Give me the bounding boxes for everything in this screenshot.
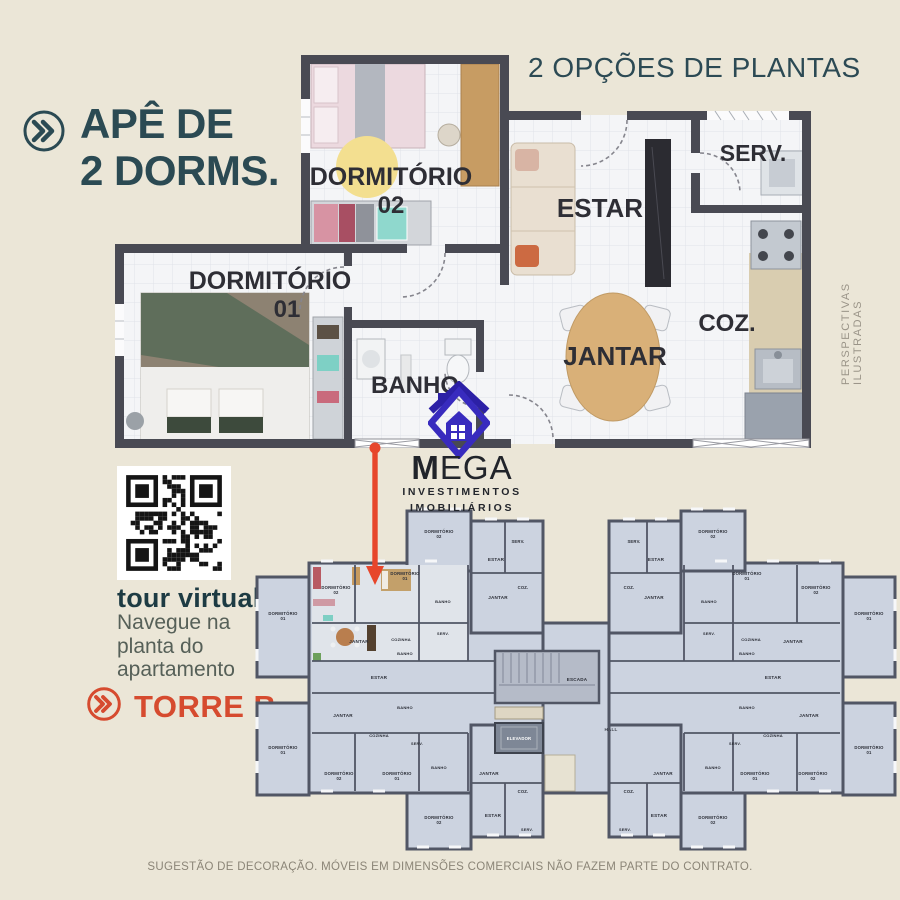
svg-text:SERV.: SERV.: [511, 539, 524, 544]
brand-tagline-2: IMOBILIÁRIOS: [385, 502, 539, 514]
svg-text:HALL: HALL: [604, 727, 617, 732]
svg-text:BANHO: BANHO: [397, 705, 413, 710]
svg-text:COZ.: COZ.: [518, 585, 529, 590]
svg-text:COZ.: COZ.: [624, 585, 635, 590]
stove: [751, 221, 801, 269]
svg-text:ESTAR: ESTAR: [488, 557, 505, 562]
svg-text:01: 01: [274, 296, 301, 323]
svg-text:COZINHA: COZINHA: [369, 733, 389, 738]
svg-text:ESTAR: ESTAR: [485, 813, 502, 818]
svg-text:JANTAR: JANTAR: [479, 771, 499, 776]
label-dorm02: DORMITÓRIO: [310, 161, 473, 191]
svg-text:SERV.: SERV.: [703, 632, 715, 636]
svg-text:COZ.: COZ.: [624, 789, 635, 794]
svg-text:ESCADA: ESCADA: [567, 677, 588, 682]
brand-name: MEGA: [392, 449, 532, 487]
label-jantar: JANTAR: [563, 341, 667, 371]
svg-text:JANTAR: JANTAR: [653, 771, 673, 776]
svg-text:01: 01: [752, 776, 758, 781]
svg-text:ESTAR: ESTAR: [651, 813, 668, 818]
link-arrow: [365, 442, 385, 587]
svg-text:01: 01: [744, 576, 750, 581]
svg-text:JANTAR: JANTAR: [783, 639, 803, 644]
svg-text:ESTAR: ESTAR: [648, 557, 665, 562]
svg-text:BANHO: BANHO: [397, 651, 413, 656]
label-serv: SERV.: [720, 140, 787, 166]
tour-virtual-label: tour virtual: [117, 583, 260, 614]
cabinet: [745, 393, 809, 439]
svg-text:SERV.: SERV.: [619, 828, 631, 832]
svg-text:02: 02: [378, 192, 405, 219]
svg-text:SERV.: SERV.: [521, 828, 533, 832]
brand-tagline-1: INVESTIMENTOS: [385, 486, 539, 498]
svg-text:JANTAR: JANTAR: [349, 639, 369, 644]
svg-text:01: 01: [402, 576, 408, 581]
flyer-page: APÊ DE 2 DORMS. 2 OPÇÕES DE PLANTAS PERS…: [0, 0, 900, 900]
disclaimer-text: SUGESTÃO DE DECORAÇÃO. MÓVEIS EM DIMENSÕ…: [0, 861, 900, 873]
perspectives-note: PERSPECTIVAS ILUSTRADAS: [840, 210, 864, 385]
lobby: [495, 707, 543, 719]
svg-text:02: 02: [436, 534, 442, 539]
brand-house-icon: [428, 381, 490, 459]
svg-text:SERV.: SERV.: [411, 742, 423, 746]
label-coz: COZ.: [698, 310, 755, 337]
svg-text:JANTAR: JANTAR: [644, 595, 664, 600]
svg-text:02: 02: [336, 776, 342, 781]
svg-text:SERV.: SERV.: [729, 742, 741, 746]
label-dorm01: DORMITÓRIO: [189, 265, 352, 295]
svg-text:BANHO: BANHO: [739, 651, 755, 656]
svg-text:02: 02: [710, 820, 716, 825]
label-estar: ESTAR: [557, 193, 643, 223]
svg-text:02: 02: [333, 590, 339, 595]
svg-text:SERV.: SERV.: [627, 539, 640, 544]
tower-row: TORRE B: [86, 686, 276, 727]
svg-text:COZINHA: COZINHA: [741, 637, 761, 642]
svg-text:COZ.: COZ.: [518, 789, 529, 794]
svg-text:ESTAR: ESTAR: [371, 675, 388, 680]
svg-text:BANHO: BANHO: [435, 599, 451, 604]
svg-text:01: 01: [280, 616, 286, 621]
chevrons-circle-accent-icon: [86, 686, 122, 727]
svg-text:BANHO: BANHO: [431, 765, 447, 770]
svg-text:01: 01: [866, 750, 872, 755]
svg-text:JANTAR: JANTAR: [488, 595, 508, 600]
svg-text:02: 02: [436, 820, 442, 825]
svg-text:01: 01: [866, 616, 872, 621]
svg-text:BANHO: BANHO: [705, 765, 721, 770]
building-floor-plate: DORMITÓRIO02DORMITÓRIO02SERV.SERV.ESTARE…: [255, 503, 900, 855]
svg-text:02: 02: [710, 534, 716, 539]
svg-text:01: 01: [394, 776, 400, 781]
svg-text:01: 01: [280, 750, 286, 755]
svg-text:02: 02: [810, 776, 816, 781]
entry: [545, 755, 575, 791]
tour-caption: Navegue na planta do apartamento: [117, 611, 235, 682]
svg-text:BANHO: BANHO: [701, 599, 717, 604]
svg-text:COZINHA: COZINHA: [391, 637, 411, 642]
chevrons-circle-icon: [22, 109, 66, 153]
svg-text:JANTAR: JANTAR: [799, 713, 819, 718]
svg-text:SERV.: SERV.: [437, 632, 449, 636]
svg-text:ELEVADOR: ELEVADOR: [507, 736, 532, 741]
svg-text:BANHO: BANHO: [739, 705, 755, 710]
svg-text:JANTAR: JANTAR: [333, 713, 353, 718]
svg-text:COZINHA: COZINHA: [763, 733, 783, 738]
svg-text:02: 02: [813, 590, 819, 595]
qr-code: [117, 466, 231, 580]
svg-text:ESTAR: ESTAR: [765, 675, 782, 680]
